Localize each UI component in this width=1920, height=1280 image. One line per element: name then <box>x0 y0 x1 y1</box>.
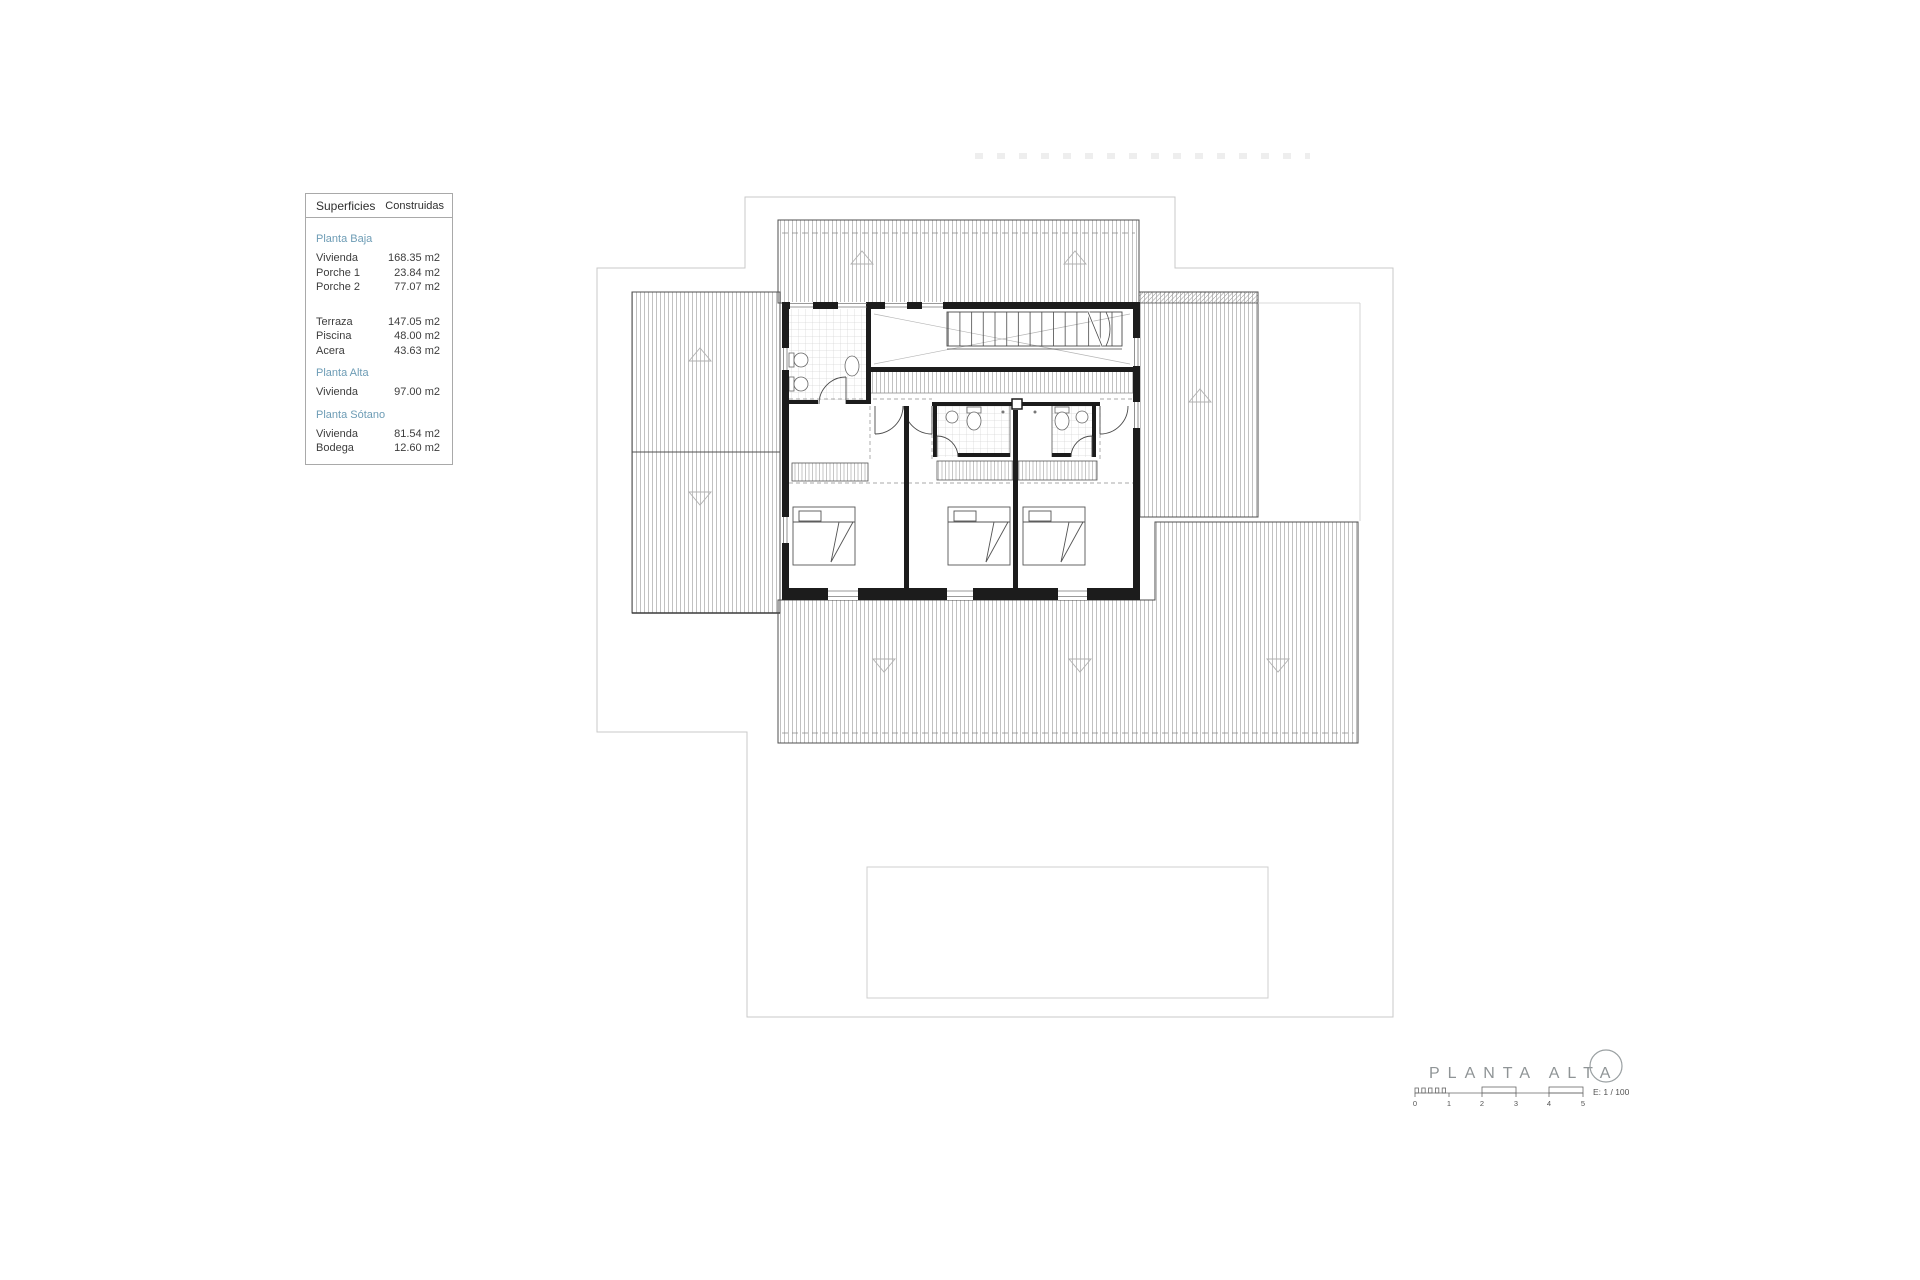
toilet-icon <box>794 353 808 367</box>
pool <box>867 867 1268 998</box>
row-value: 48.00 m2 <box>394 329 440 344</box>
row-value: 168.35 m2 <box>388 251 440 266</box>
row-label: Porche 1 <box>316 266 360 281</box>
ensuite-a <box>933 406 1010 457</box>
ground-floor-outline <box>1258 303 1360 521</box>
floor-plan-sheet: PLANTA ALTA 0 1 2 3 4 5 E: 1 / 100 Super… <box>0 0 1920 1280</box>
row-label: Bodega <box>316 441 354 456</box>
table-row: Porche 1 23.84 m2 <box>306 266 452 281</box>
building <box>782 302 1140 600</box>
door-stop-icon <box>1034 411 1037 414</box>
row-label: Terraza <box>316 315 353 330</box>
row-label: Vivienda <box>316 427 358 442</box>
surfaces-table-body: Planta Baja Vivienda 168.35 m2 Porche 1 … <box>306 218 452 456</box>
table-row: Vivienda 97.00 m2 <box>306 385 452 400</box>
sink-icon <box>845 356 859 376</box>
toilet-icon <box>789 353 794 367</box>
row-value: 97.00 m2 <box>394 385 440 400</box>
column-post <box>1012 399 1022 409</box>
scale-tick-label: 5 <box>1581 1099 1585 1108</box>
row-value: 43.63 m2 <box>394 344 440 359</box>
row-value: 23.84 m2 <box>394 266 440 281</box>
surfaces-col1-label: Superficies <box>316 199 375 213</box>
surfaces-col2-label: Construidas <box>385 200 444 212</box>
table-row: Piscina 48.00 m2 <box>306 329 452 344</box>
sink-icon <box>1076 411 1088 423</box>
section-title: Planta Alta <box>306 367 452 380</box>
row-label: Porche 2 <box>316 280 360 295</box>
table-row: Vivienda 81.54 m2 <box>306 427 452 442</box>
roof-left <box>632 292 780 613</box>
toilet-icon <box>967 412 981 430</box>
bathroom-main <box>789 309 866 404</box>
section-title <box>306 304 452 310</box>
section-title: Planta Sótano <box>306 409 452 422</box>
table-row: Porche 2 77.07 m2 <box>306 280 452 295</box>
scale-tick-label: 0 <box>1413 1099 1417 1108</box>
door-stop-icon <box>1002 411 1005 414</box>
section-title: Planta Baja <box>306 233 452 246</box>
roof-right <box>1139 292 1258 517</box>
surfaces-table-header: Superficies Construidas <box>306 194 452 218</box>
row-value: 77.07 m2 <box>394 280 440 295</box>
roof-top <box>778 220 1139 303</box>
title-block: PLANTA ALTA 0 1 2 3 4 5 E: 1 / 100 <box>1413 1050 1630 1108</box>
table-row: Terraza 147.05 m2 <box>306 315 452 330</box>
scale-tick-label: 4 <box>1547 1099 1551 1108</box>
toilet-icon <box>1055 412 1069 430</box>
table-row: Bodega 12.60 m2 <box>306 441 452 456</box>
sink-icon <box>946 411 958 423</box>
bidet-icon <box>794 377 808 391</box>
row-value: 147.05 m2 <box>388 315 440 330</box>
scale-ratio: E: 1 / 100 <box>1593 1087 1630 1097</box>
row-value: 12.60 m2 <box>394 441 440 456</box>
floor-plan-drawing: PLANTA ALTA 0 1 2 3 4 5 E: 1 / 100 <box>0 0 1920 1280</box>
scale-tick-labels: 0 1 2 3 4 5 <box>1413 1099 1585 1108</box>
scale-tick-label: 2 <box>1480 1099 1484 1108</box>
void-hatch-band <box>871 372 1133 393</box>
surfaces-table: Superficies Construidas Planta Baja Vivi… <box>305 193 453 465</box>
ensuite-b <box>1052 406 1096 457</box>
divider-wall <box>1013 410 1018 588</box>
wardrobe <box>792 461 1097 481</box>
row-label: Vivienda <box>316 385 358 400</box>
scale-tick-label: 1 <box>1447 1099 1451 1108</box>
table-row: Acera 43.63 m2 <box>306 344 452 359</box>
row-label: Piscina <box>316 329 351 344</box>
row-label: Vivienda <box>316 251 358 266</box>
row-label: Acera <box>316 344 345 359</box>
row-value: 81.54 m2 <box>394 427 440 442</box>
scale-bar <box>1415 1087 1583 1097</box>
divider-wall <box>904 406 909 588</box>
scale-tick-label: 3 <box>1514 1099 1518 1108</box>
table-row: Vivienda 168.35 m2 <box>306 251 452 266</box>
bidet-icon <box>789 377 794 391</box>
